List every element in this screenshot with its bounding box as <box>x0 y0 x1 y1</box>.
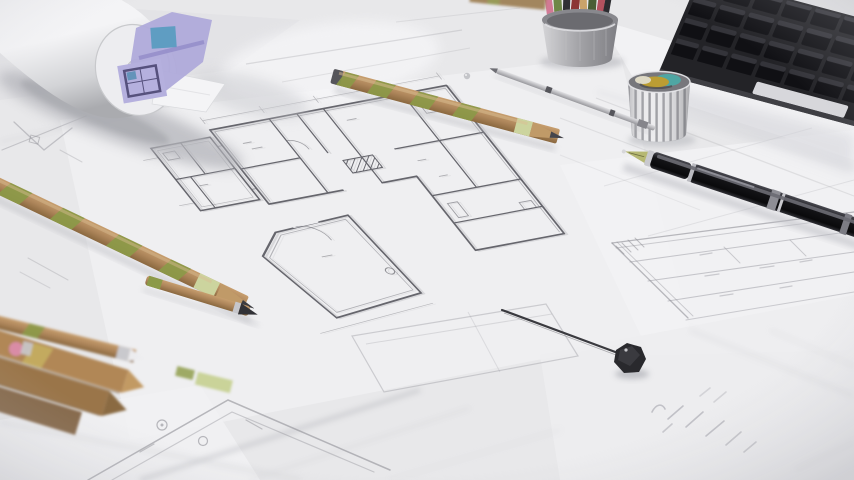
desk-scene <box>0 0 854 480</box>
vignette-overlay <box>0 0 854 480</box>
desk-photo <box>0 0 854 480</box>
